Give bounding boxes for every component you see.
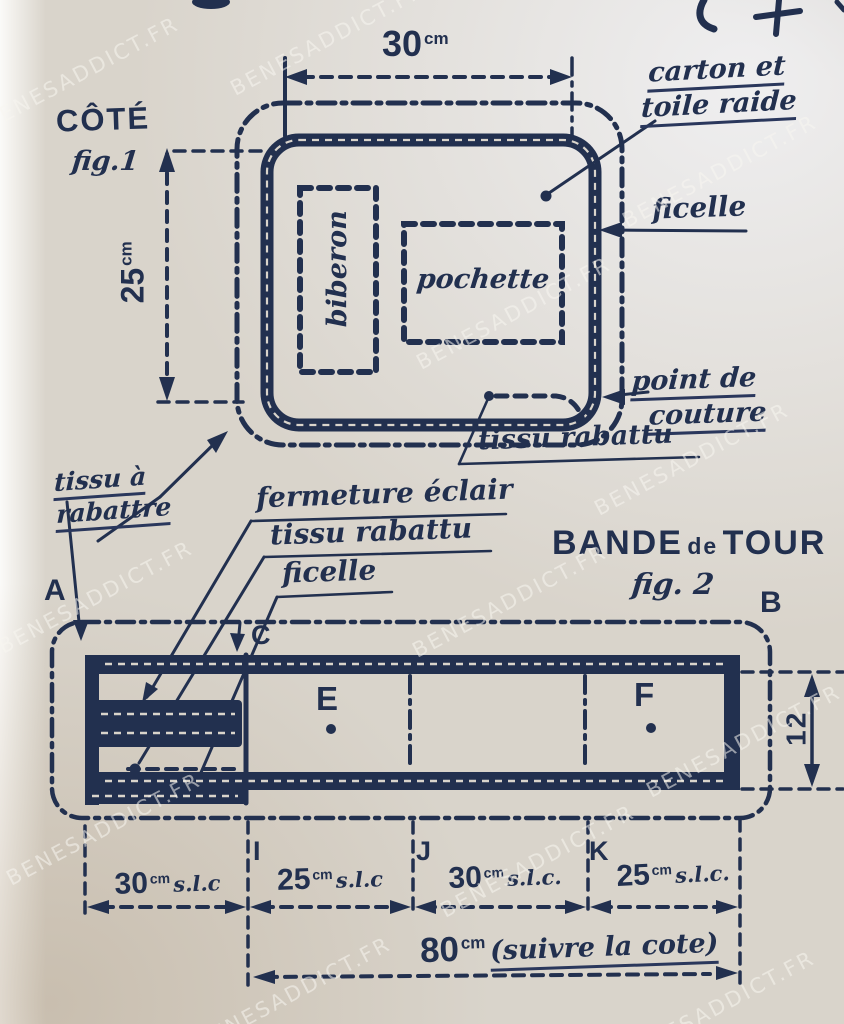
point-a-label: A bbox=[44, 574, 66, 608]
fig2-fig-label: fig. 2 bbox=[630, 570, 715, 600]
tissu-a-rabattre-label: tissu à rabattre bbox=[53, 462, 172, 532]
point-c-label: C bbox=[251, 620, 271, 651]
segment3-suffix: s.l.c. bbox=[507, 864, 562, 891]
segment1-suffix: s.l.c bbox=[173, 870, 221, 897]
fig1-height-value: 25 bbox=[115, 268, 151, 304]
fig1-width-unit: cm bbox=[424, 29, 449, 48]
segment4-unit: cm bbox=[651, 861, 672, 878]
fig2-title: BANDE de TOUR bbox=[552, 526, 826, 561]
page-edge-marks bbox=[192, 0, 844, 34]
fig1-width-label: 30cm bbox=[382, 26, 449, 63]
fig1-height-dimension bbox=[158, 148, 263, 402]
fig1-height-unit: cm bbox=[117, 241, 136, 266]
segment3-unit: cm bbox=[483, 864, 504, 881]
fig2-title-de: de bbox=[687, 533, 718, 559]
pochette-label: pochette bbox=[409, 266, 558, 294]
total-unit: cm bbox=[460, 933, 485, 953]
segment2-unit: cm bbox=[312, 866, 333, 883]
scanned-pattern-page: CÔTÉ fig.1 30cm 25cm carton et toile rai… bbox=[0, 0, 844, 1024]
segment3-value: 30 bbox=[448, 861, 483, 895]
fig2-zipper-bar bbox=[94, 700, 242, 769]
point-c-arrow bbox=[230, 623, 245, 652]
point-f-label: F bbox=[634, 676, 654, 714]
tissu-rabattu-label-fig1: tissu rabattu bbox=[478, 421, 674, 455]
fig2-title-bande: BANDE bbox=[552, 524, 683, 562]
fig1-width-value: 30 bbox=[382, 23, 422, 64]
segment1-unit: cm bbox=[150, 870, 171, 887]
fig1-title: CÔTÉ bbox=[55, 102, 150, 137]
tissu-rabattu-callout-label: tissu rabattu bbox=[270, 514, 473, 550]
fig2-section-dividers bbox=[326, 676, 656, 770]
fig1-height-label: 25cm bbox=[117, 212, 150, 332]
segment4-value: 25 bbox=[616, 858, 651, 893]
couture-label-line1: point de bbox=[630, 364, 757, 401]
total-value: 80 bbox=[419, 930, 459, 970]
ficelle-callout-label: ficelle bbox=[282, 556, 377, 588]
segment2-label: 25cms.l.c bbox=[254, 859, 405, 898]
point-i-label: I bbox=[253, 836, 261, 867]
segment1-value: 30 bbox=[114, 867, 149, 901]
segment1-label: 30cms.l.c bbox=[94, 863, 240, 902]
fig2-title-tour: TOUR bbox=[723, 524, 827, 562]
fig1-fig-label: fig.1 bbox=[71, 148, 141, 176]
ficelle-label-fig1: ficelle bbox=[652, 192, 747, 224]
carton-label: carton et toile raide bbox=[638, 52, 797, 127]
fig2-height-label: 12 bbox=[783, 683, 812, 773]
segment4-suffix: s.l.c. bbox=[674, 860, 730, 888]
point-b-label: B bbox=[760, 586, 782, 620]
segment2-suffix: s.l.c bbox=[335, 866, 383, 893]
segment3-label: 30cms.l.c. bbox=[424, 857, 585, 897]
fig1-flap-line bbox=[484, 391, 583, 420]
biberon-label: biberon bbox=[324, 209, 352, 329]
point-e-label: E bbox=[316, 680, 338, 718]
segment2-value: 25 bbox=[277, 863, 312, 897]
